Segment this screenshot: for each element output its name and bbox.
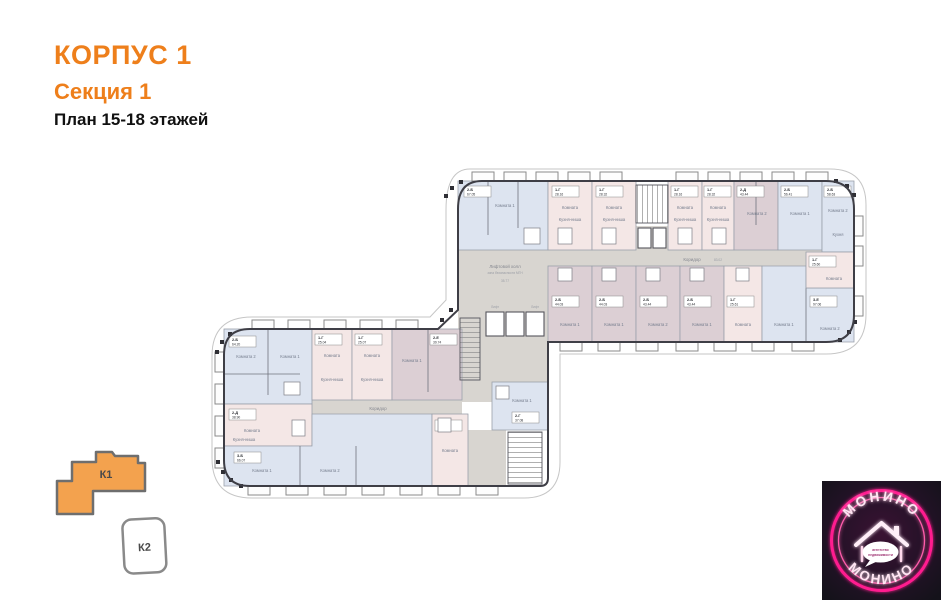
svg-text:Комната: Комната — [442, 448, 459, 453]
svg-text:Кухня-ниша: Кухня-ниша — [361, 377, 384, 382]
svg-text:Комната 2: Комната 2 — [747, 211, 767, 216]
svg-text:Комната: Комната — [677, 205, 694, 210]
svg-text:97.06: 97.06 — [813, 303, 821, 307]
apartment-unit[interactable]: 1-Г 25.60 Комната — [806, 252, 854, 288]
svg-text:43.44: 43.44 — [643, 303, 651, 307]
svg-text:2-Д: 2-Д — [232, 411, 238, 415]
svg-text:Комната 1: Комната 1 — [790, 211, 810, 216]
svg-text:1-Г: 1-Г — [730, 298, 736, 302]
minimap-k2[interactable]: К2 — [122, 518, 167, 574]
svg-text:2-Б: 2-Б — [232, 338, 238, 342]
svg-text:64.20: 64.20 — [232, 343, 240, 347]
svg-text:Комната: Комната — [826, 276, 843, 281]
svg-text:Комната 2: Комната 2 — [820, 326, 840, 331]
svg-text:Комната 1: Комната 1 — [560, 322, 580, 327]
svg-text:Комната: Комната — [244, 428, 261, 433]
svg-text:Комната: Комната — [324, 353, 341, 358]
svg-text:Комната 1: Комната 1 — [252, 468, 272, 473]
svg-text:43.44: 43.44 — [740, 193, 748, 197]
svg-text:Комната: Комната — [710, 205, 727, 210]
svg-text:Лифт: Лифт — [491, 305, 499, 309]
svg-text:1-Г: 1-Г — [555, 188, 561, 192]
building-minimap: К1 К2 — [48, 436, 208, 576]
svg-text:Комната 2: Комната 2 — [236, 354, 256, 359]
svg-text:зона безопасности МГН: зона безопасности МГН — [487, 271, 523, 275]
apartment-unit[interactable]: 2-Д 43.44 Комната 2 — [734, 181, 778, 250]
svg-text:1-Г: 1-Г — [812, 258, 818, 262]
svg-text:2-Е: 2-Е — [433, 336, 439, 340]
apartment-unit[interactable]: 2-Б 56.41 Комната 1 — [778, 181, 822, 250]
svg-text:Комната 1: Комната 1 — [604, 322, 624, 327]
apartment-unit[interactable]: 1-Г 25.07 Комната Кухня-ниша — [352, 329, 392, 400]
svg-text:28.32: 28.32 — [599, 193, 607, 197]
svg-text:Кухня-ниша: Кухня-ниша — [559, 217, 582, 222]
svg-text:83.02: 83.02 — [714, 258, 722, 262]
svg-text:2-Б: 2-Б — [467, 188, 473, 192]
svg-text:Комната 2: Комната 2 — [828, 208, 848, 213]
svg-text:Комната: Комната — [735, 322, 752, 327]
svg-text:Кухня-ниша: Кухня-ниша — [707, 217, 730, 222]
svg-text:Кухня-ниша: Кухня-ниша — [674, 217, 697, 222]
monino-logo: МОНИНО МОНИНО агентство недвижимости — [822, 481, 941, 600]
svg-text:38.90: 38.90 — [232, 416, 240, 420]
svg-text:3-Е: 3-Е — [813, 298, 819, 302]
apartment-unit[interactable]: 2-Е 39.74 Комната 1 — [392, 329, 462, 400]
svg-text:25.07: 25.07 — [358, 341, 366, 345]
svg-text:Кухня: Кухня — [833, 232, 844, 237]
svg-text:2-Г: 2-Г — [515, 414, 521, 418]
svg-text:1-Г: 1-Г — [318, 336, 324, 340]
svg-text:Лифтовой холл: Лифтовой холл — [489, 264, 521, 269]
logo-tagline-1: агентство — [872, 548, 889, 552]
svg-text:Комната 1: Комната 1 — [512, 398, 532, 403]
svg-text:Комната: Комната — [364, 353, 381, 358]
svg-text:2-Б: 2-Б — [555, 298, 561, 302]
svg-text:1-Г: 1-Г — [358, 336, 364, 340]
svg-text:Кухня-ниша: Кухня-ниша — [233, 437, 256, 442]
svg-text:Лифт: Лифт — [531, 305, 539, 309]
svg-text:1-Г: 1-Г — [707, 188, 713, 192]
svg-text:2-Б: 2-Б — [784, 188, 790, 192]
svg-text:2-Б: 2-Б — [599, 298, 605, 302]
svg-text:Комната 1: Комната 1 — [774, 322, 794, 327]
svg-text:28.16: 28.16 — [555, 193, 563, 197]
svg-text:37.08: 37.08 — [515, 419, 523, 423]
svg-text:58.63: 58.63 — [827, 193, 835, 197]
svg-text:2-Б: 2-Б — [687, 298, 693, 302]
svg-text:2-Б: 2-Б — [827, 188, 833, 192]
minimap-k1[interactable]: К1 — [57, 452, 145, 514]
svg-text:3-Б: 3-Б — [237, 454, 243, 458]
svg-text:Коридор: Коридор — [369, 406, 387, 411]
svg-text:Комната 1: Комната 1 — [495, 203, 515, 208]
svg-text:Комната: Комната — [606, 205, 623, 210]
svg-text:Комната 2: Комната 2 — [648, 322, 668, 327]
minimap-k1-label: К1 — [100, 469, 113, 481]
svg-text:Комната: Комната — [562, 205, 579, 210]
svg-text:Комната 1: Комната 1 — [692, 322, 712, 327]
minimap-k2-label: К2 — [138, 542, 151, 555]
svg-text:43.44: 43.44 — [687, 303, 695, 307]
svg-text:44.03: 44.03 — [555, 303, 563, 307]
svg-text:Комната 1: Комната 1 — [280, 354, 300, 359]
svg-text:Коридор: Коридор — [683, 257, 701, 262]
svg-text:2-Д: 2-Д — [740, 188, 746, 192]
svg-text:1-Г: 1-Г — [599, 188, 605, 192]
svg-text:Комната 1: Комната 1 — [402, 358, 422, 363]
svg-text:1-Г: 1-Г — [674, 188, 680, 192]
svg-text:Кухня-ниша: Кухня-ниша — [321, 377, 344, 382]
apartment-unit[interactable]: 1-Г 25.04 Комната Кухня-ниша — [312, 329, 352, 400]
svg-text:25.61: 25.61 — [730, 303, 738, 307]
svg-text:2-Б: 2-Б — [643, 298, 649, 302]
svg-text:67.05: 67.05 — [467, 193, 475, 197]
svg-text:44.03: 44.03 — [599, 303, 607, 307]
svg-text:66.07: 66.07 — [237, 459, 245, 463]
svg-text:39.74: 39.74 — [433, 341, 441, 345]
logo-tagline-2: недвижимости — [868, 553, 893, 557]
svg-text:56.41: 56.41 — [784, 193, 792, 197]
svg-text:35.77: 35.77 — [501, 279, 509, 283]
svg-text:Кухня-ниша: Кухня-ниша — [603, 217, 626, 222]
svg-text:28.32: 28.32 — [707, 193, 715, 197]
svg-text:25.04: 25.04 — [318, 341, 326, 345]
svg-text:Комната 2: Комната 2 — [320, 468, 340, 473]
svg-text:28.16: 28.16 — [674, 193, 682, 197]
svg-text:25.60: 25.60 — [812, 263, 820, 267]
